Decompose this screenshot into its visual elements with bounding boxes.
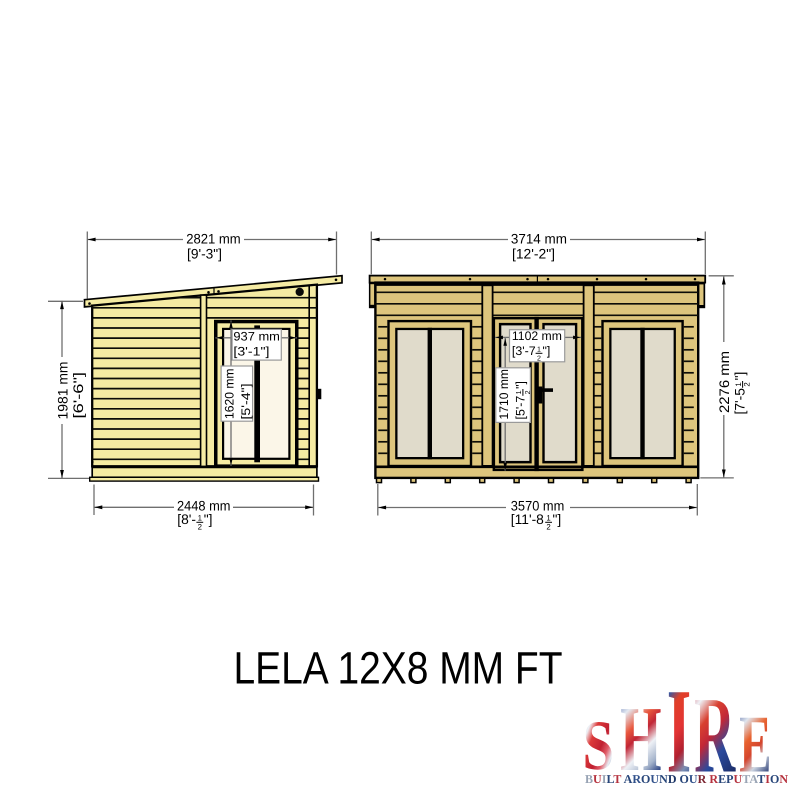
svg-text:1: 1 — [734, 382, 743, 386]
svg-text:2: 2 — [743, 382, 752, 386]
svg-text:1981 mm: 1981 mm — [55, 362, 70, 420]
svg-text:LELA 12X8 MM FT: LELA 12X8 MM FT — [234, 643, 563, 694]
svg-text:"]: "] — [514, 381, 528, 389]
svg-text:1620 mm: 1620 mm — [222, 369, 236, 420]
svg-text:937 mm: 937 mm — [233, 329, 280, 343]
svg-text:1: 1 — [516, 390, 523, 394]
svg-text:[5'-7: [5'-7 — [514, 396, 528, 420]
svg-text:[3'-1"]: [3'-1"] — [233, 344, 269, 358]
svg-text:[5'-4"]: [5'-4"] — [239, 384, 253, 420]
svg-text:"]: "] — [553, 512, 562, 527]
svg-text:2276 mm: 2276 mm — [717, 351, 732, 413]
svg-text:[12'-2"]: [12'-2"] — [512, 247, 555, 262]
svg-text:1102 mm: 1102 mm — [512, 329, 562, 343]
svg-text:[8'-: [8'- — [177, 512, 196, 527]
svg-text:2: 2 — [525, 390, 532, 394]
svg-text:2: 2 — [546, 522, 550, 531]
svg-text:1710 mm: 1710 mm — [497, 369, 511, 420]
svg-text:1: 1 — [537, 347, 541, 354]
svg-text:3714 mm: 3714 mm — [511, 232, 567, 247]
svg-text:"]: "] — [732, 372, 747, 381]
svg-text:[9'-3"]: [9'-3"] — [187, 247, 222, 262]
svg-text:2: 2 — [198, 522, 202, 531]
svg-text:1: 1 — [546, 514, 550, 523]
svg-text:1: 1 — [198, 514, 202, 523]
svg-text:[3'-7: [3'-7 — [512, 344, 536, 358]
svg-text:BUILT AROUND OUR REPUTATION: BUILT AROUND OUR REPUTATION — [585, 772, 788, 786]
svg-text:2821 mm: 2821 mm — [186, 232, 241, 247]
svg-text:"]: "] — [543, 344, 551, 358]
svg-text:[11'-8: [11'-8 — [511, 512, 544, 527]
svg-text:[6'-6"]: [6'-6"] — [71, 372, 86, 419]
svg-text:"]: "] — [204, 512, 213, 527]
svg-text:[7'-5: [7'-5 — [732, 388, 747, 415]
svg-text:2: 2 — [537, 355, 541, 362]
